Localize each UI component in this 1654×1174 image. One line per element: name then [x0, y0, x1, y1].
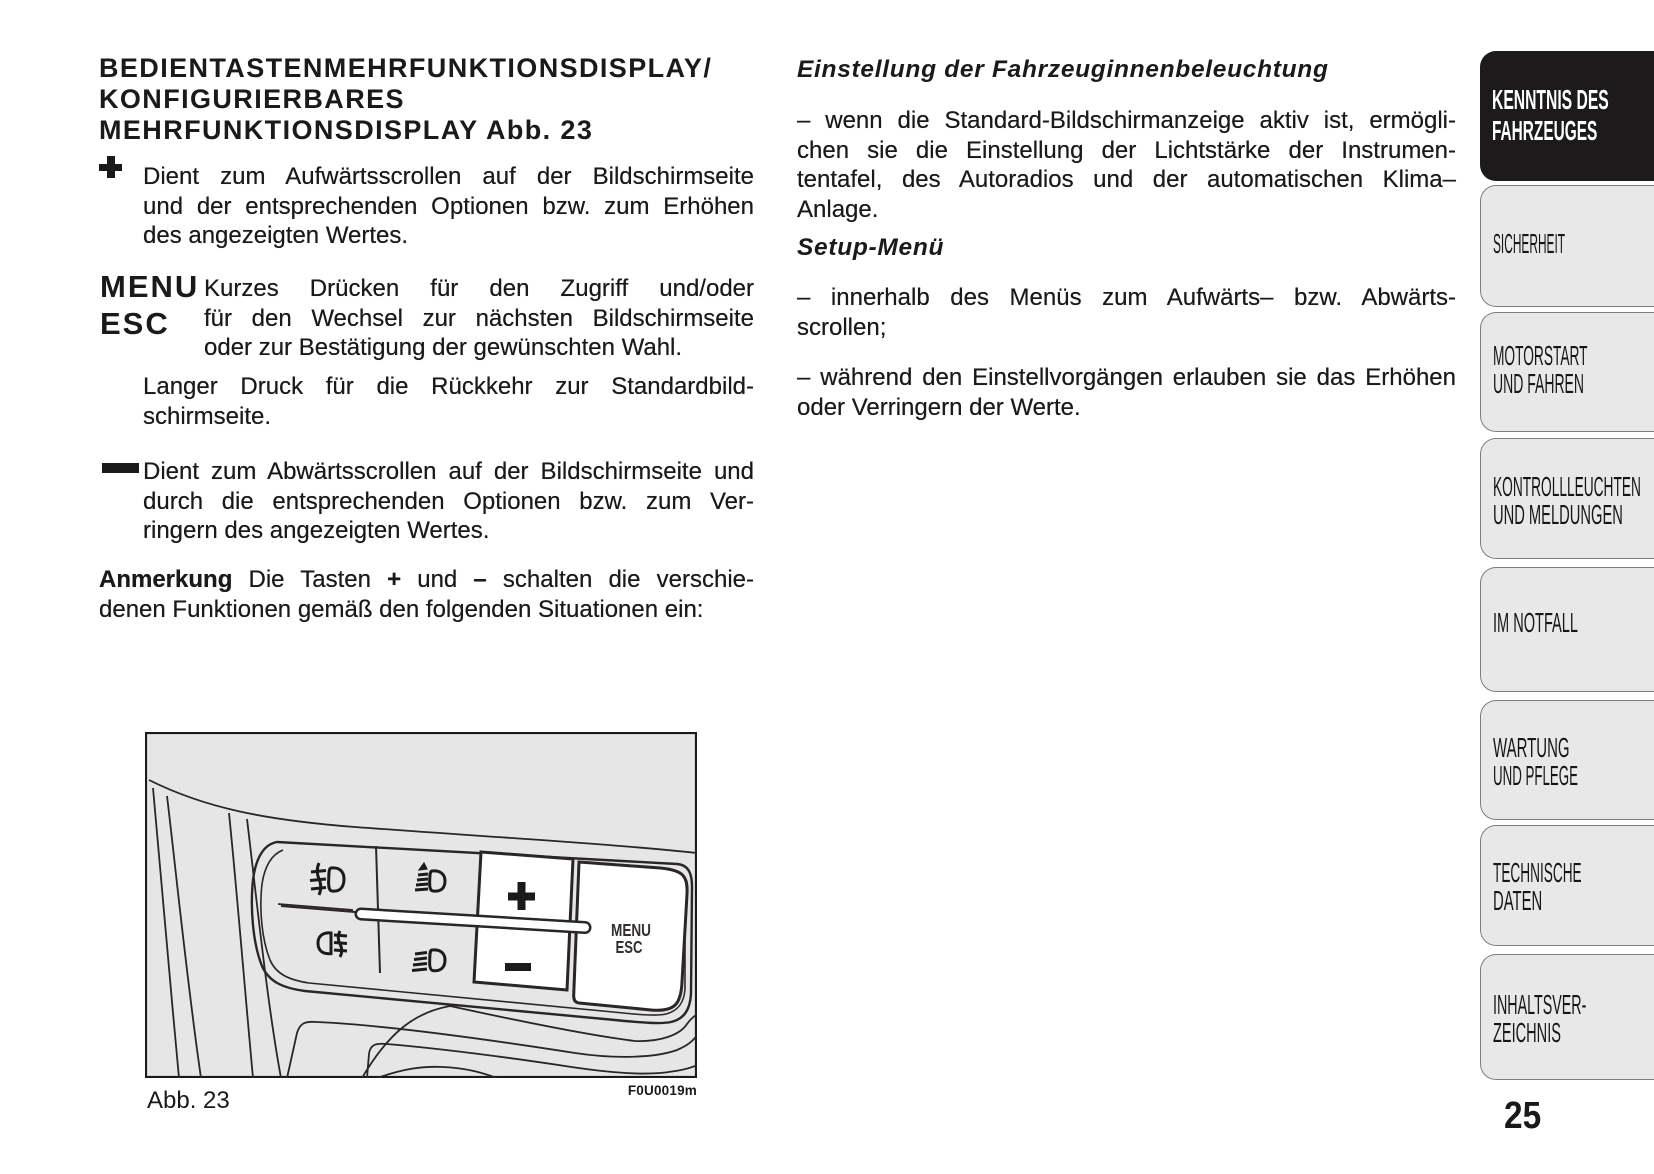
svg-text:ESC: ESC [616, 937, 643, 957]
